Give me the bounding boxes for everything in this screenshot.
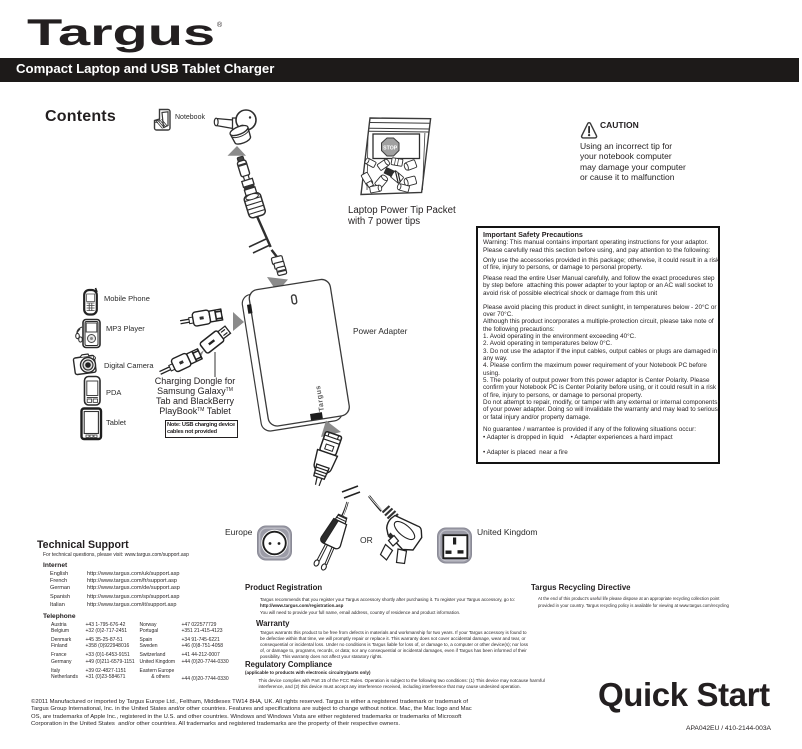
svg-text:STOP: STOP [383,145,398,151]
